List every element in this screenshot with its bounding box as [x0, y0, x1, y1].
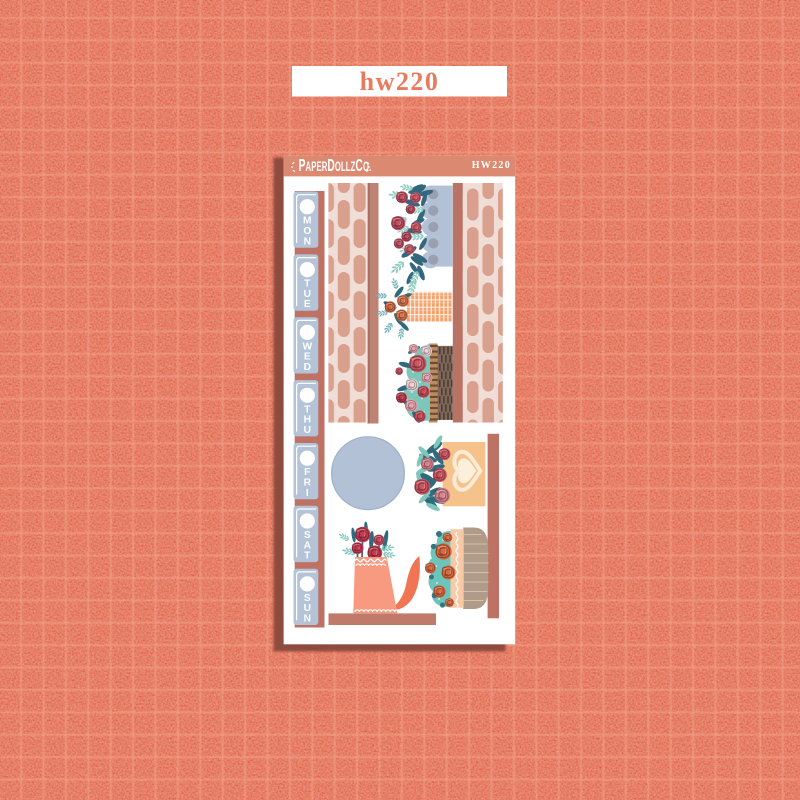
svg-text:hw220: hw220 — [360, 67, 440, 96]
svg-text:N: N — [304, 614, 311, 625]
svg-text:E: E — [304, 299, 311, 310]
svg-text:PAPERDOLLZCO.: PAPERDOLLZCO. — [299, 156, 372, 176]
svg-text:D: D — [304, 362, 311, 373]
svg-text:T: T — [304, 551, 311, 562]
svg-text:HW220: HW220 — [472, 160, 511, 171]
svg-text:N: N — [304, 236, 311, 247]
svg-text:U: U — [304, 425, 311, 436]
svg-text:I: I — [306, 488, 309, 499]
